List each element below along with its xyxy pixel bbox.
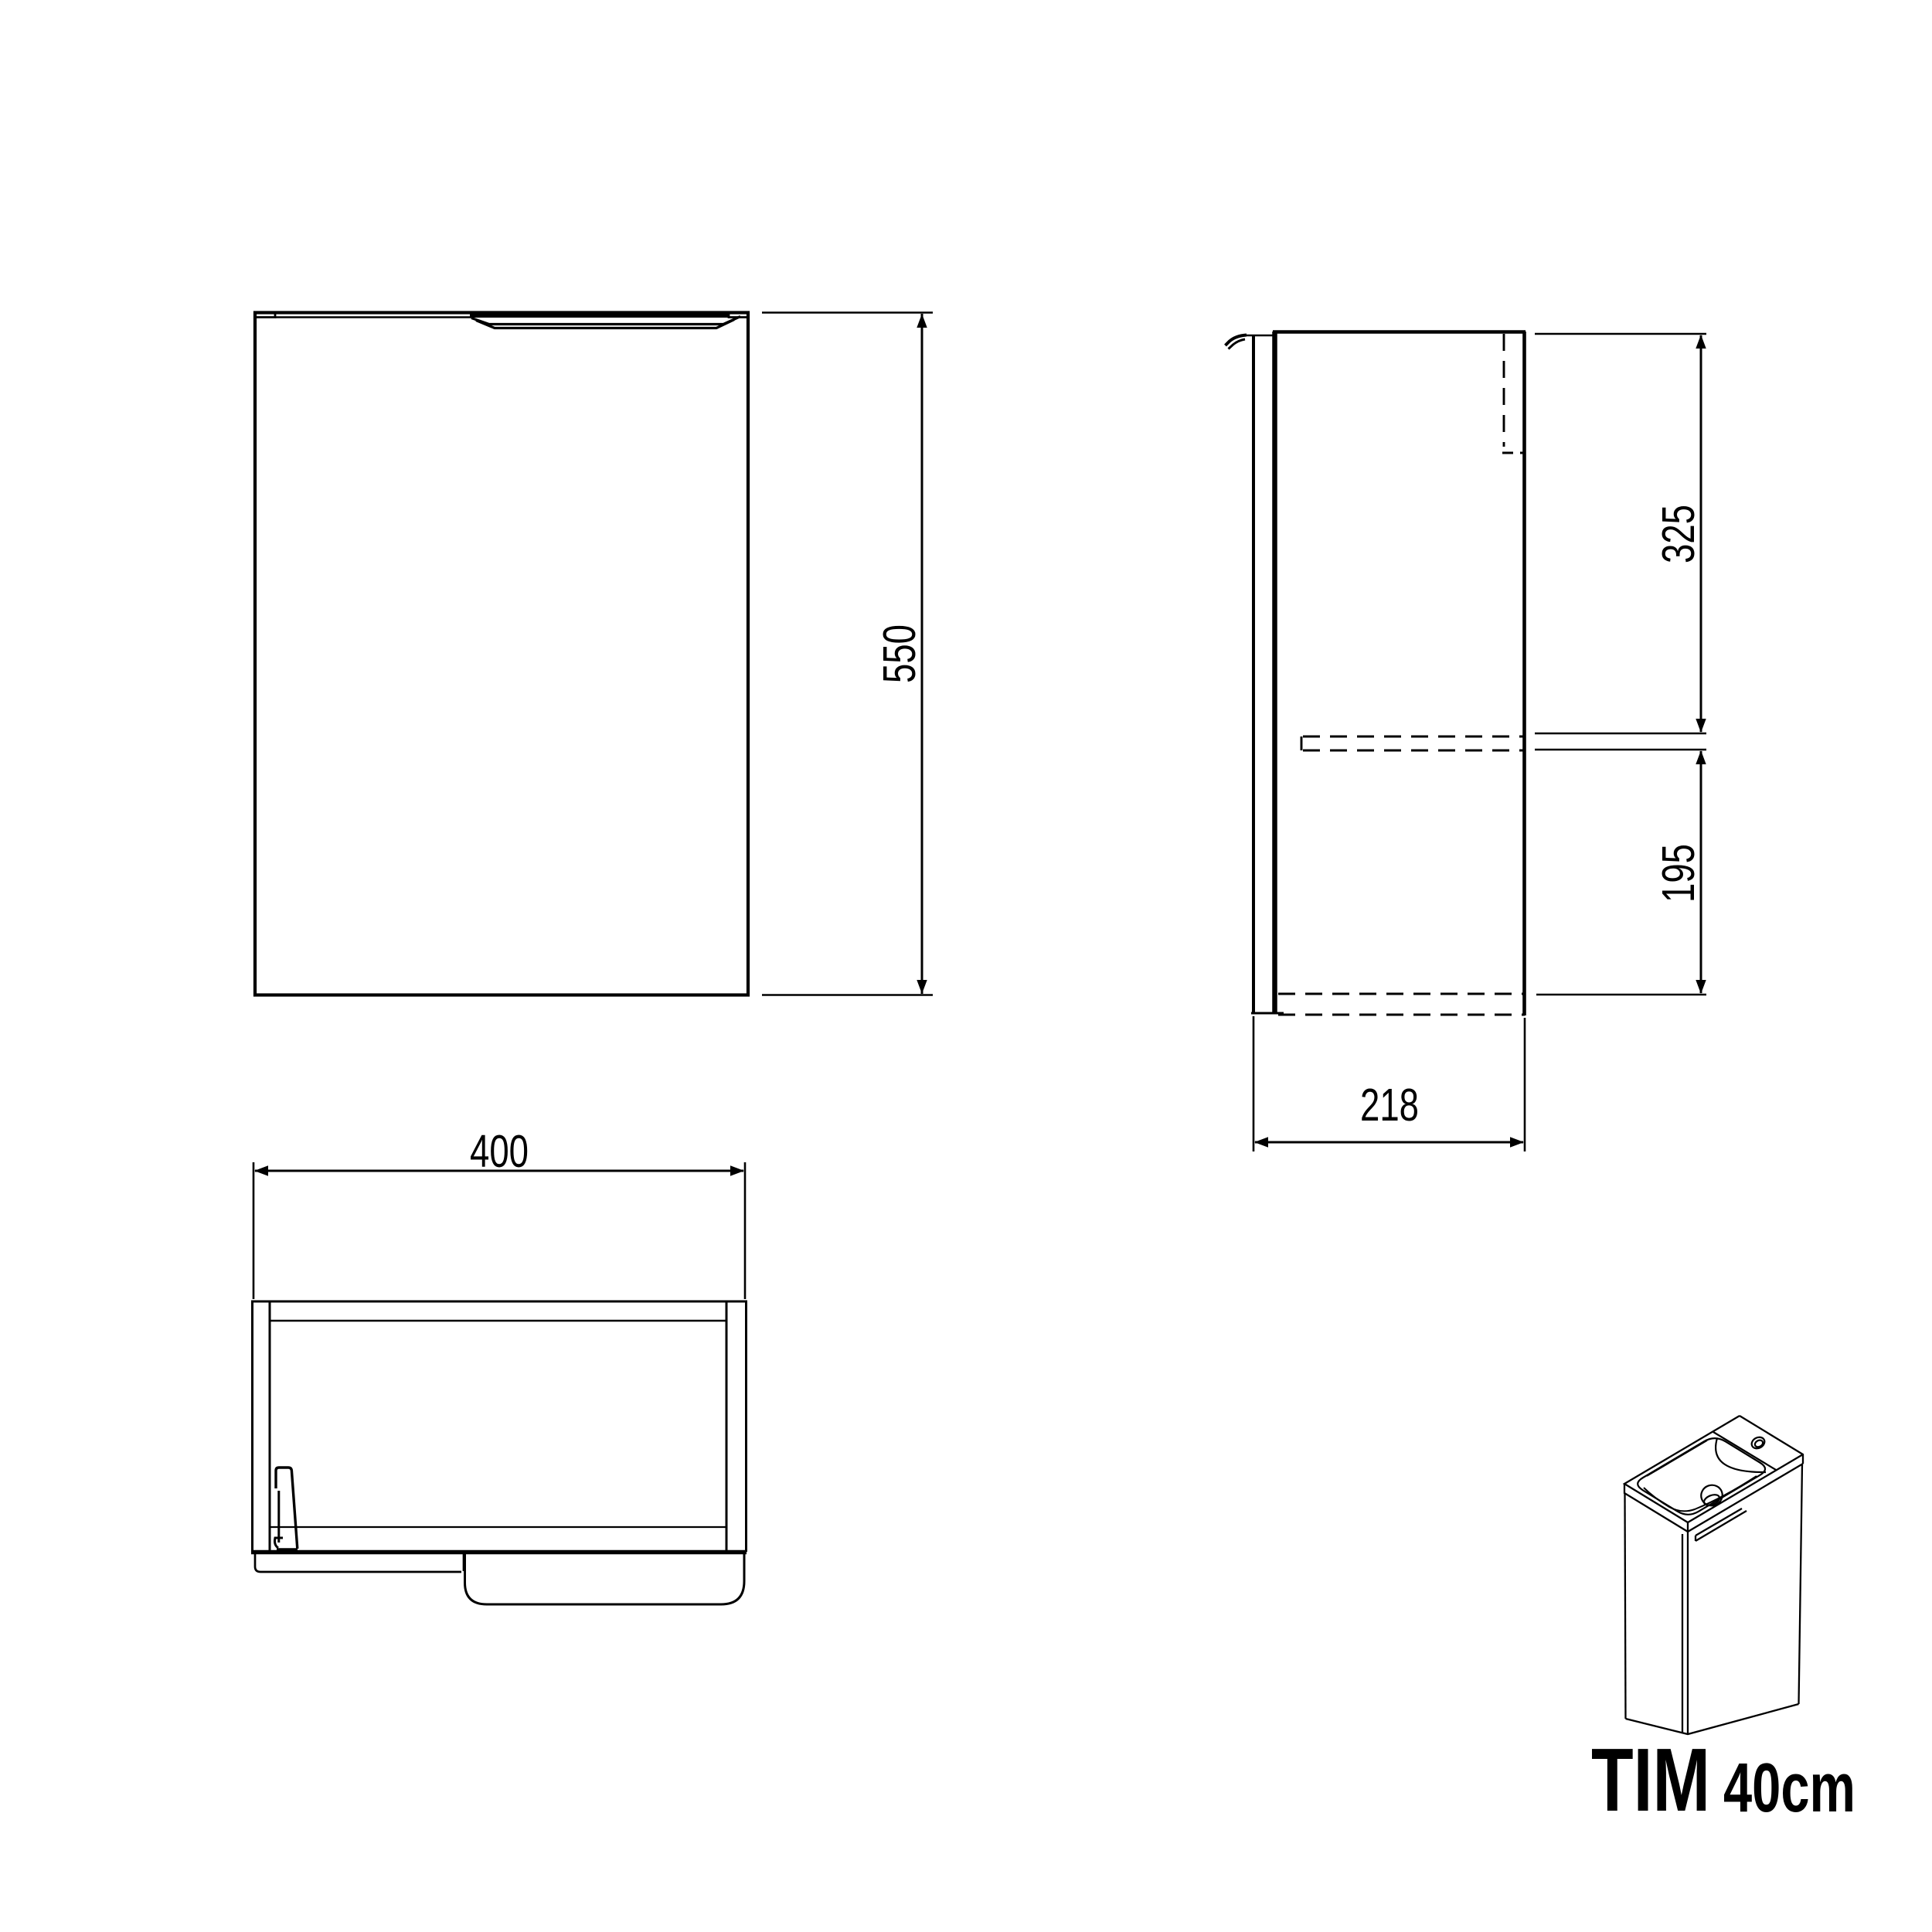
svg-text:400: 400 — [470, 1125, 529, 1177]
svg-text:40cm: 40cm — [1723, 1750, 1855, 1827]
svg-text:TIM: TIM — [1591, 1730, 1710, 1830]
svg-text:218: 218 — [1360, 1079, 1419, 1131]
svg-text:325: 325 — [1652, 505, 1704, 563]
svg-text:195: 195 — [1652, 844, 1704, 903]
svg-text:550: 550 — [873, 624, 925, 683]
